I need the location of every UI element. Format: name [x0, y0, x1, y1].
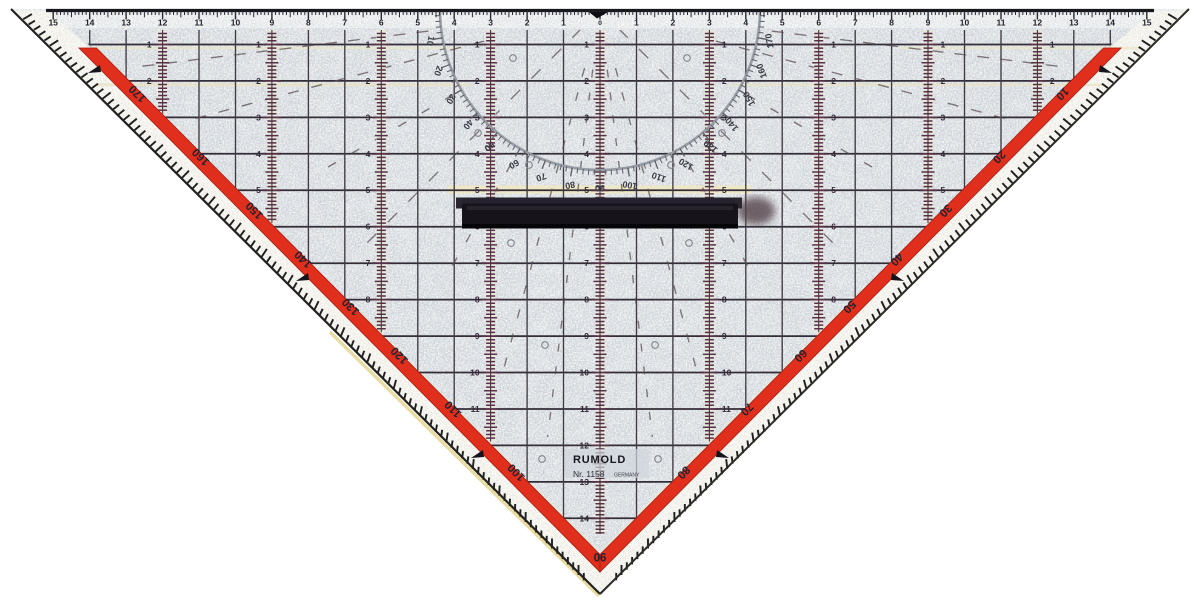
svg-text:12: 12	[580, 440, 590, 450]
svg-text:8: 8	[889, 18, 894, 28]
svg-text:4: 4	[584, 149, 589, 159]
svg-text:13: 13	[1069, 18, 1079, 28]
svg-text:5: 5	[831, 185, 836, 195]
svg-text:4: 4	[722, 149, 727, 159]
svg-text:7: 7	[722, 258, 727, 268]
svg-text:7: 7	[342, 18, 347, 28]
svg-text:1: 1	[475, 40, 480, 50]
svg-text:9: 9	[926, 18, 931, 28]
svg-text:5: 5	[256, 185, 261, 195]
svg-text:5: 5	[584, 185, 589, 195]
svg-text:11: 11	[722, 404, 731, 414]
svg-text:2: 2	[831, 76, 836, 86]
svg-text:6: 6	[379, 18, 384, 28]
svg-text:5: 5	[475, 185, 480, 195]
svg-text:7: 7	[853, 18, 858, 28]
svg-text:4: 4	[366, 149, 371, 159]
svg-text:8: 8	[306, 18, 311, 28]
svg-text:1: 1	[831, 40, 836, 50]
svg-text:10: 10	[580, 368, 590, 378]
svg-text:9: 9	[722, 331, 727, 341]
svg-text:2: 2	[671, 18, 676, 28]
svg-text:6: 6	[366, 222, 371, 232]
svg-text:8: 8	[475, 295, 480, 305]
svg-text:1: 1	[366, 40, 371, 50]
svg-text:2: 2	[722, 76, 727, 86]
svg-text:GERMANY: GERMANY	[614, 473, 640, 479]
svg-text:5: 5	[780, 18, 785, 28]
svg-text:5: 5	[366, 185, 371, 195]
svg-text:2: 2	[475, 76, 480, 86]
svg-text:6: 6	[816, 18, 821, 28]
svg-text:9: 9	[584, 331, 589, 341]
svg-text:1: 1	[584, 40, 589, 50]
svg-text:2: 2	[584, 76, 589, 86]
svg-text:3: 3	[488, 18, 493, 28]
svg-text:2: 2	[256, 76, 261, 86]
svg-text:11: 11	[195, 18, 204, 28]
svg-text:12: 12	[1033, 18, 1043, 28]
svg-text:10: 10	[722, 368, 732, 378]
svg-text:2: 2	[366, 76, 371, 86]
svg-text:11: 11	[580, 404, 589, 414]
svg-text:7: 7	[584, 258, 589, 268]
svg-text:7: 7	[366, 258, 371, 268]
svg-text:RUMOLD: RUMOLD	[573, 454, 626, 466]
svg-text:4: 4	[743, 18, 748, 28]
svg-text:15: 15	[1142, 18, 1152, 28]
svg-text:1: 1	[561, 18, 566, 28]
svg-text:90: 90	[595, 183, 605, 193]
svg-text:1: 1	[147, 40, 152, 50]
svg-text:4: 4	[831, 149, 836, 159]
svg-text:5: 5	[941, 185, 946, 195]
svg-text:1: 1	[1050, 40, 1055, 50]
svg-text:80: 80	[564, 179, 576, 191]
svg-text:11: 11	[997, 18, 1006, 28]
svg-text:8: 8	[722, 295, 727, 305]
svg-text:3: 3	[831, 112, 836, 122]
svg-text:15: 15	[48, 18, 58, 28]
svg-text:10: 10	[960, 18, 970, 28]
svg-text:9: 9	[270, 18, 275, 28]
svg-text:2: 2	[147, 76, 152, 86]
svg-text:7: 7	[831, 258, 836, 268]
svg-text:9: 9	[475, 331, 480, 341]
svg-text:2: 2	[525, 18, 530, 28]
svg-text:4: 4	[452, 18, 457, 28]
svg-text:Nr. 1158: Nr. 1158	[573, 469, 605, 479]
svg-text:13: 13	[121, 18, 131, 28]
svg-text:1: 1	[256, 40, 261, 50]
svg-text:4: 4	[941, 149, 946, 159]
svg-text:90: 90	[594, 550, 607, 562]
svg-text:5: 5	[722, 185, 727, 195]
svg-text:8: 8	[584, 295, 589, 305]
svg-text:12: 12	[158, 18, 168, 28]
svg-text:4: 4	[475, 149, 480, 159]
svg-text:7: 7	[475, 258, 480, 268]
svg-text:1: 1	[722, 40, 727, 50]
svg-text:1: 1	[941, 40, 946, 50]
svg-text:10: 10	[470, 368, 480, 378]
svg-text:1: 1	[634, 18, 639, 28]
svg-text:3: 3	[941, 112, 946, 122]
svg-text:5: 5	[415, 18, 420, 28]
svg-text:8: 8	[366, 295, 371, 305]
svg-text:2: 2	[1050, 76, 1055, 86]
svg-text:3: 3	[366, 112, 371, 122]
svg-text:11: 11	[471, 404, 480, 414]
svg-text:0: 0	[598, 20, 602, 27]
svg-text:3: 3	[256, 112, 261, 122]
svg-text:3: 3	[707, 18, 712, 28]
svg-text:14: 14	[1106, 18, 1116, 28]
svg-text:3: 3	[584, 112, 589, 122]
svg-text:14: 14	[85, 18, 95, 28]
svg-text:14: 14	[580, 513, 590, 523]
svg-text:10: 10	[231, 18, 241, 28]
svg-text:8: 8	[831, 295, 836, 305]
svg-text:10: 10	[425, 35, 437, 47]
svg-text:2: 2	[941, 76, 946, 86]
svg-text:4: 4	[256, 149, 261, 159]
svg-text:6: 6	[831, 222, 836, 232]
